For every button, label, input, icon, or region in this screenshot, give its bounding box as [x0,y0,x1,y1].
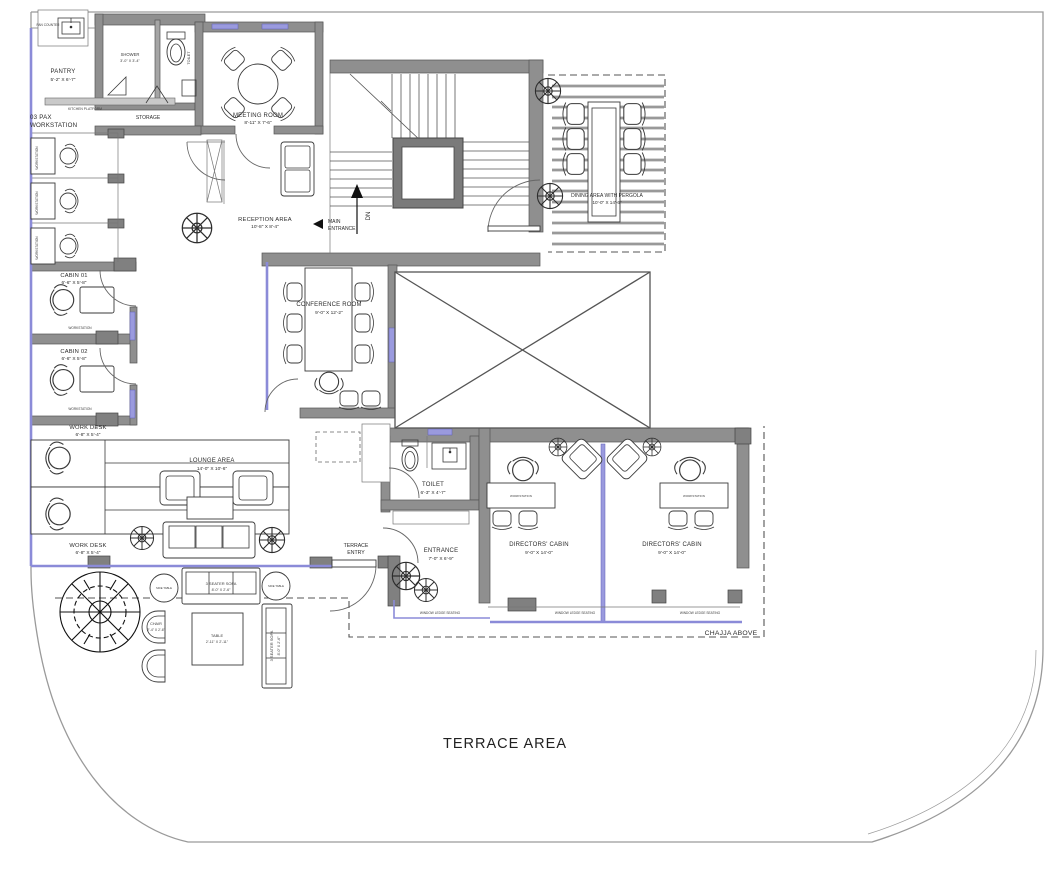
chair-outdoor-label: CHAIR [150,622,162,626]
office-chair-icon [50,285,73,316]
workstation-label: WORKSTATION [35,191,39,215]
directors-cabin-left [487,437,604,529]
round-table [238,64,278,104]
armchair-icon [605,437,649,481]
toilet-small-label: TOILET [187,51,191,65]
plant-icon [535,78,560,103]
workstation-label: WORKSTATION [510,494,532,498]
table-outdoor-label: TABLE [211,633,224,638]
wc-icon [402,440,418,471]
conference-dims: 9'-0" X 12'-2" [315,310,343,316]
plant-icon [537,183,562,208]
lounge-sofa [163,522,255,558]
cabin-02-label: CABIN 02 [60,349,87,355]
chair-icon [220,46,247,73]
sofa-3seater-label: 3 SEATER SOFA [269,630,274,661]
terrace-entry-label-1: TERRACE [344,543,369,549]
tree-icon [60,572,140,652]
meeting-room-label: MEETING ROOM [233,113,283,119]
terrace-area-label: TERRACE AREA [443,736,567,752]
chajja-label: CHAJJA ABOVE [705,630,758,637]
chair-icon [361,391,381,410]
chair-icon [284,344,303,364]
office-chair-icon [508,457,539,480]
chair-icon [668,511,688,530]
plant-icon [182,213,211,242]
cabin-02-dims: 6'-6" X 5'-8" [62,356,87,362]
lounge-dims: 14'-0" X 10'-6" [197,466,228,472]
workstation-label: WORKSTATION [683,494,705,498]
chair-icon [563,153,584,176]
directors-cabin-dims: 9'-0" X 14'-0" [525,550,553,556]
side-table-label: SIDE TABLE [268,584,284,588]
coffee-table [187,497,233,519]
ledge-seating-label: WINDOW LEDGE SEATING [555,611,596,615]
office-chair-icon [60,144,78,168]
terrace-entry-label-2: ENTRY [347,550,365,556]
meeting-room-furniture [220,46,297,123]
cabin-01-label: CABIN 01 [60,273,87,279]
pantry-label: PANTRY [51,69,76,75]
office-chair-icon [315,372,343,394]
reception-furniture [207,140,314,204]
chair-icon [339,391,359,410]
basin-icon [432,443,466,469]
pan-counter-label: PAN COUNTER [37,23,61,27]
outdoor-chair-icon [142,611,165,643]
dining-dims: 10'-0" X 14'-6" [592,200,621,205]
plant-icon [414,578,437,601]
workstation-label: WORKSTATION [68,407,92,411]
conference-label: CONFERENCE ROOM [296,302,361,308]
shower-label: SHOWER [121,52,140,57]
outdoor-table [192,613,243,665]
sofa-3seater-dims: 8'-0" X 2'-6" [277,636,281,655]
plant-icon [130,526,153,549]
workstation-label: WORKSTATION [68,326,92,330]
wc-icon [167,32,196,96]
plant-icon [549,438,567,456]
kitchen-platform-label: KITCHEN PLATFORM [68,107,102,111]
partition-unit [207,140,222,202]
kitchen-platform [45,98,175,105]
entrance-label: ENTRANCE [424,548,459,554]
chair-icon [624,153,645,176]
reception-sofa [281,142,314,196]
directors-cabin-dims: 9'-0" X 14'-0" [658,550,686,556]
dn-label: DN [366,212,372,221]
work-desk-dims: 6'-8" X 5'-4" [76,432,101,438]
staircase [330,74,529,234]
plant-icon [259,527,284,552]
outdoor-chair-icon [142,650,165,682]
storage-label: STORAGE [136,115,161,121]
office-chair-icon [60,189,78,213]
work-desk-dims: 6'-8" X 5'-4" [76,550,101,556]
chair-icon [694,511,714,530]
shower-dims: 3'-0" X 3'-4" [120,59,140,63]
pantry-dims: 5'-2" X 6'-7" [51,77,76,83]
work-desk-label: WORK DESK [69,425,106,431]
sofa-3seater-label: 3 SEATER SOFA [206,581,237,586]
outdoor-sofa-horizontal [182,568,260,604]
table-outdoor-dims: 2'-11" X 2'-11" [206,640,229,644]
toilet-label: TOILET [422,482,444,488]
side-table-label: SIDE TABLE [156,586,172,590]
floor-plan-drawing: PAN COUNTER KITCHEN PLATFORM PANTRY 5'-2… [0,0,1057,883]
conference-furniture [284,268,391,482]
workstation-label: WORKSTATION [35,236,39,260]
office-chair-icon [60,234,78,258]
sofa-3seater-dims: 8'-0" X 2'-6" [212,588,231,592]
chair-icon [284,313,303,333]
toilet-dims: 6'-3" X 4'-7" [421,490,446,496]
ledge-seating-label: WINDOW LEDGE SEATING [680,611,721,615]
chair-icon [355,313,374,333]
floor-plan: PAN COUNTER KITCHEN PLATFORM PANTRY 5'-2… [0,0,1057,883]
workstation-label: WORKSTATION [35,146,39,170]
plant-icon [643,438,661,456]
cabin-02-furniture [50,365,114,396]
cabin-01-furniture [50,285,114,316]
directors-cabin-label: DIRECTORS' CABIN [642,542,702,548]
cabin-01-dims: 6'-6" X 5'-8" [62,280,87,286]
chair-icon [492,511,512,530]
directors-cabin-right [605,437,728,529]
meeting-room-dims: 8'-11" X 7'-6" [244,120,272,126]
chair-icon [518,511,538,530]
main-entrance-arrow [313,219,323,229]
pan-counter [38,10,88,46]
entrance-dims: 7'-0" X 6'-9" [429,556,454,562]
directors-cabin-label: DIRECTORS' CABIN [509,542,569,548]
reception-dims: 10'-8" X 8'-4" [251,224,279,230]
void-cutout [395,272,650,428]
chair-icon [355,282,374,302]
ledge-seating-label: WINDOW LEDGE SEATING [420,611,461,615]
reception-label: RECEPTION AREA [238,217,292,223]
office-chair-icon [50,365,73,396]
work-desk-label: WORK DESK [69,543,106,549]
armchair-icon [233,471,273,505]
lounge-label: LOUNGE AREA [189,458,234,464]
chair-outdoor-dims: 2'-4" X 2'-6" [147,628,165,632]
dining-label: DINING AREA WITH PERGOLA [571,193,643,199]
conference-table [305,268,352,371]
chair-icon [284,282,303,302]
chair-icon [269,46,296,73]
office-chair-icon [675,457,706,480]
main-entrance-label-2: ENTRANCE [328,226,356,232]
main-entrance-label-1: MAIN [328,219,341,225]
chair-icon [355,344,374,364]
pax-label-2: WORKSTATION [30,122,77,129]
pax-label-1: 03 PAX [30,114,52,121]
